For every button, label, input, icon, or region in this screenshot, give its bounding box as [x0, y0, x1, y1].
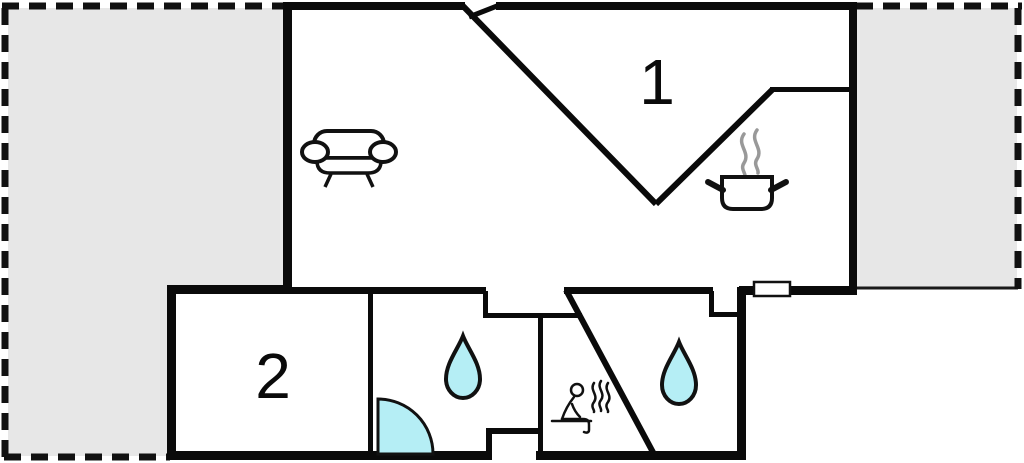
alcove-wall-horizontal: [483, 313, 582, 318]
sauna-diagonal-wall: [566, 290, 655, 456]
house-bottom-wall-a: [283, 287, 486, 294]
house-left-wall: [283, 2, 292, 294]
room2-label: 2: [255, 340, 291, 412]
water-drop-icon: [446, 336, 480, 398]
annex-bottom-wall-left: [167, 451, 492, 460]
steam-line-2: [755, 130, 759, 173]
sofa-armrest-left: [302, 142, 328, 162]
sofa-leg-right: [367, 174, 373, 187]
bathroom2-notch-horizontal: [709, 312, 741, 317]
sofa-armrest-right: [370, 142, 396, 162]
heat-wave-2: [599, 381, 602, 411]
sofa-seat: [317, 158, 381, 173]
room2-bathroom-wall: [368, 291, 373, 453]
bathroom-sauna-wall: [538, 313, 543, 456]
sauna-person-back: [562, 397, 574, 419]
steam-line-1: [742, 134, 746, 177]
sauna-person-head: [571, 384, 583, 396]
steam-icon: [742, 130, 759, 177]
top-wall-left-segment: [283, 2, 465, 10]
terrace-left: [8, 8, 286, 456]
shower-door-icon: [378, 399, 433, 454]
sofa-icon: [302, 131, 396, 187]
window-symbol: [754, 282, 790, 296]
top-wall-right-segment: [496, 2, 857, 10]
kitchen-wall: [770, 87, 853, 92]
heat-wave-3: [606, 383, 609, 412]
house-bottom-wall-b: [564, 287, 713, 294]
sauna-person-arm: [572, 404, 580, 417]
room1-diagonal-left: [462, 5, 656, 204]
heat-wave-1: [592, 383, 595, 412]
floorplan-svg: 1 2: [0, 0, 1024, 463]
floorplan-canvas: 1 2: [0, 0, 1024, 463]
terrace-right: [857, 8, 1017, 288]
room1-label: 1: [639, 46, 675, 118]
annex-left-wall: [167, 285, 176, 460]
pot-body: [722, 177, 772, 209]
room1-diagonal-walls: [462, 5, 772, 204]
sauna-person-icon: [552, 381, 609, 433]
entry-notch-top: [486, 428, 543, 434]
annex-top-wall: [167, 285, 292, 294]
sofa-leg-left: [325, 174, 331, 187]
house-right-wall: [849, 2, 857, 294]
annex-bottom-wall-right: [536, 451, 746, 460]
water-drop-icon: [662, 342, 696, 404]
door-leaf: [469, 6, 497, 17]
